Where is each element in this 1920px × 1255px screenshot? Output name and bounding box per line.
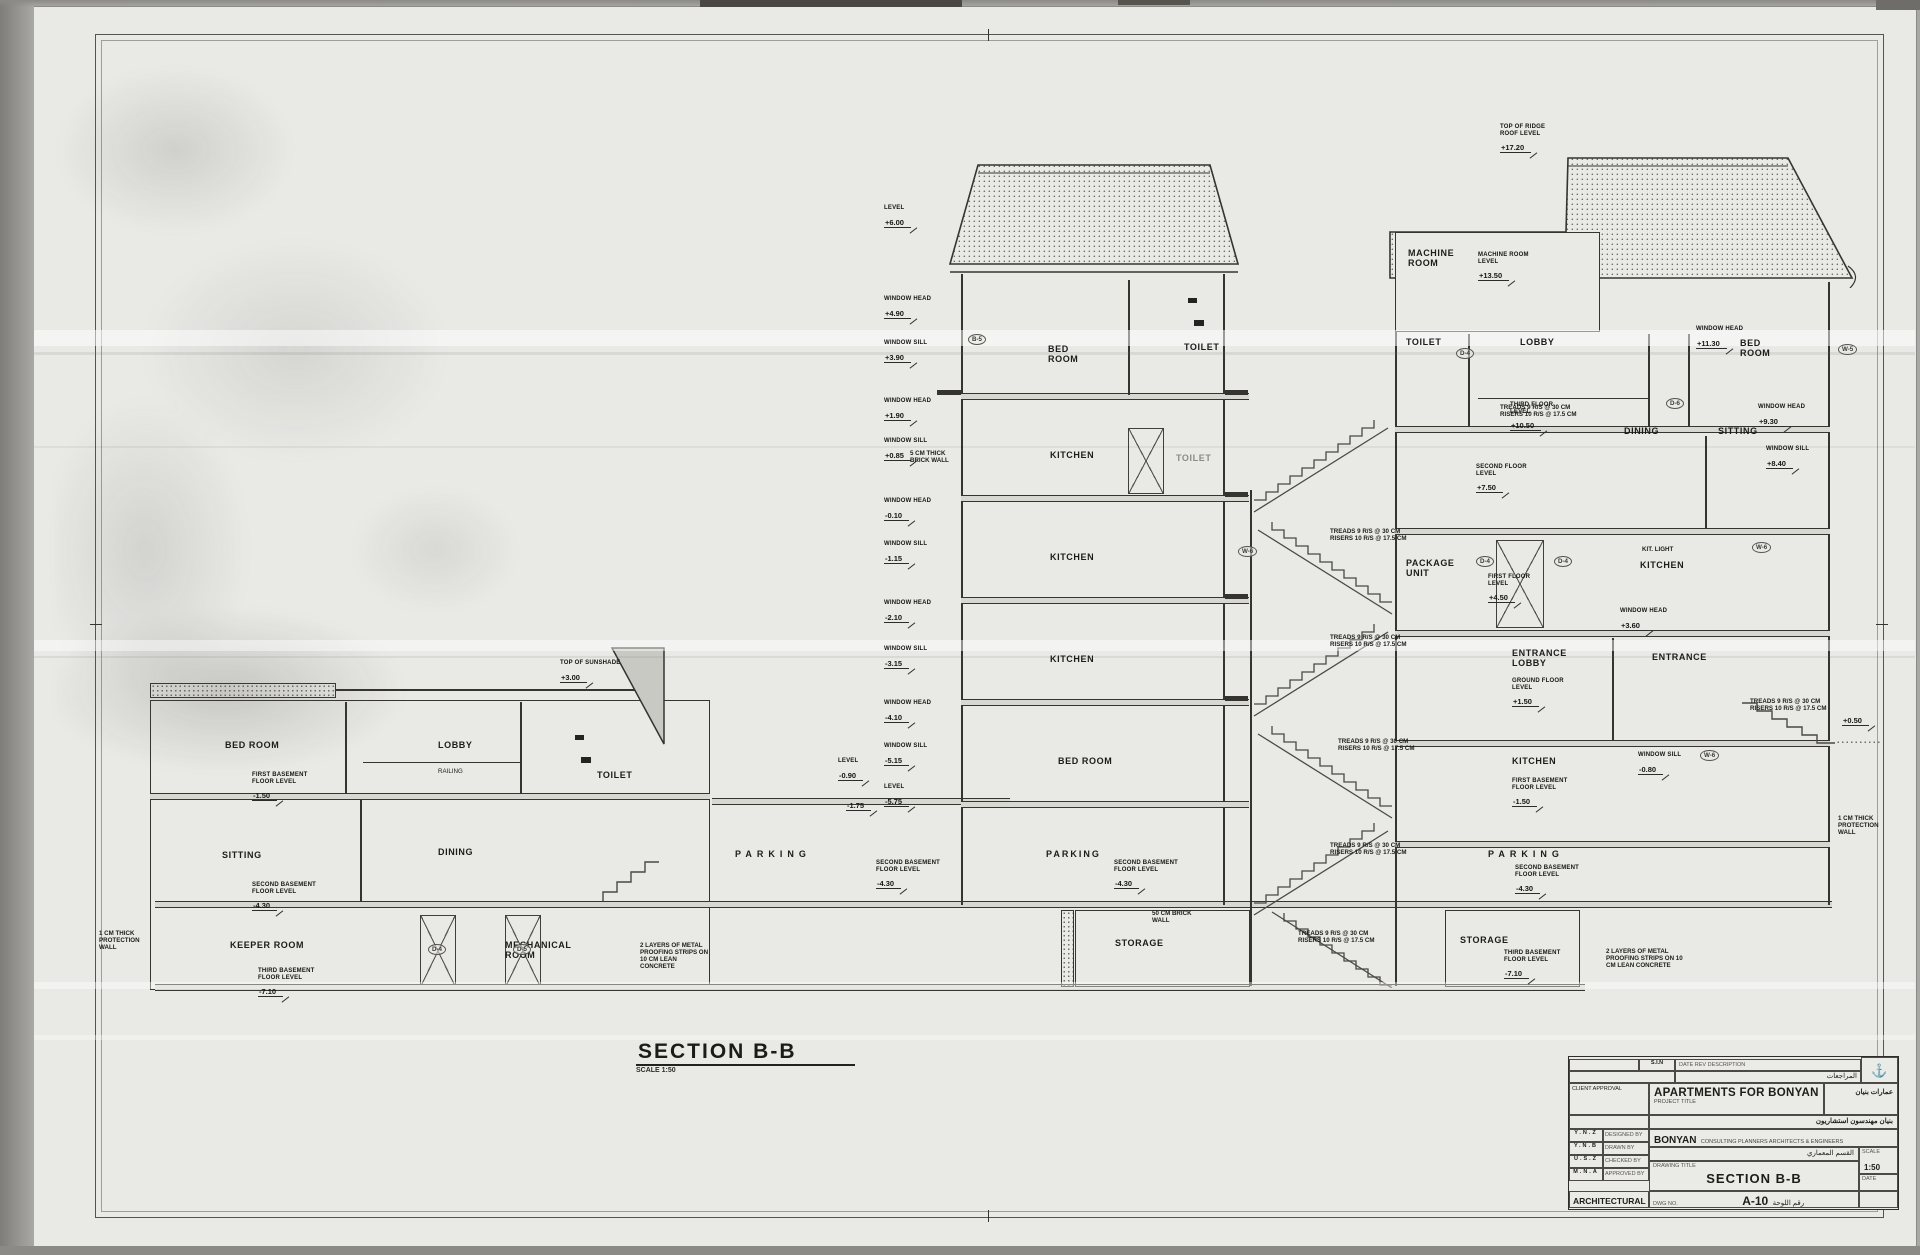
slab (1395, 630, 1830, 637)
level-mark: SECOND BASEMENT FLOOR LEVEL-4.30 (1515, 865, 1579, 896)
room-label-entrance: ENTRANCE (1652, 652, 1707, 662)
section-title-block: SECTION B-B SCALE 1:50 (636, 1040, 855, 1074)
frame-tick (988, 29, 989, 41)
stair-flight (585, 850, 663, 906)
lobby-rail-line (363, 762, 520, 763)
grade-hatch (1836, 740, 1882, 746)
level-mark: WINDOW HEAD+1.90 (884, 398, 931, 422)
level-mark: WINDOW HEAD+11.30 (1696, 326, 1743, 350)
level-mark: WINDOW HEAD+3.60 (1620, 608, 1667, 632)
rev-cell2 (1569, 1071, 1675, 1083)
dwg-no-cell: DWG NO. A-10 رقم اللوحة (1649, 1191, 1859, 1208)
room-label-kitchen: KITCHEN (1640, 560, 1684, 570)
level-mark: THIRD BASEMENT FLOOR LEVEL-7.10 (1504, 950, 1568, 981)
room-label-toilet: TOILET (1406, 337, 1441, 347)
sig-code: U.S.Z (1569, 1155, 1603, 1168)
slab (1395, 841, 1830, 848)
proofing-note: 2 LAYERS OF METAL PROOFING STRIPS ON 10 … (640, 942, 712, 971)
room-label-entrance-lobby: ENTRANCE LOBBY (1512, 648, 1567, 668)
balcony-slab (1225, 594, 1248, 599)
rev-cell (1569, 1059, 1639, 1071)
drawing-title: SECTION B-B (1650, 1171, 1858, 1186)
frame-tick (90, 624, 102, 625)
fixture (1194, 320, 1204, 326)
door-leaf (1128, 428, 1164, 494)
slab (1395, 528, 1830, 535)
room-label-storage: STORAGE (1115, 938, 1164, 948)
room-label-kitchen: KITCHEN (1050, 654, 1094, 664)
dept-arabic: القسم المعماري (1649, 1147, 1859, 1161)
room-label-storage: STORAGE (1460, 935, 1509, 945)
balcony-slab (937, 390, 961, 395)
level-mark: +0.50 (1842, 710, 1869, 728)
project-title: APARTMENTS FOR BONYAN (1650, 1084, 1823, 1099)
room-label-bed-room: BED ROOM (225, 740, 279, 750)
level-mark: SECOND BASEMENT FLOOR LEVEL -4.30 (252, 882, 316, 913)
level-mark: WINDOW SILL-5.15 (884, 743, 927, 767)
project-title-cell: APARTMENTS FOR BONYAN PROJECT TITLE (1649, 1083, 1824, 1115)
room-label-machine-room: MACHINE ROOM (1408, 248, 1454, 268)
kit-light-note: KIT. LIGHT (1642, 546, 1673, 553)
page-edge-shadow (0, 1246, 1920, 1255)
room-label-dining: DINING (1624, 426, 1659, 436)
scale-value: 1:50 (1860, 1163, 1880, 1172)
level-mark: FIRST BASEMENT FLOOR LEVEL-1.50 (1512, 778, 1576, 809)
level-mark: WINDOW HEAD-4.10 (884, 700, 931, 724)
slab (961, 393, 1249, 400)
slab (961, 597, 1249, 604)
level-mark: WINDOW SILL+3.90 (884, 340, 927, 364)
level-mark: WINDOW HEAD+9.30 (1758, 404, 1805, 428)
room-label-bed-room: BED ROOM (1740, 338, 1770, 358)
level-mark: WINDOW HEAD-2.10 (884, 600, 931, 624)
firm-cell: BONYAN CONSULTING PLANNERS ARCHITECTS & … (1649, 1129, 1898, 1147)
window-tag: B-5 (968, 334, 986, 345)
drawing-title-label: DRAWING TITLE (1650, 1162, 1858, 1171)
wall (520, 702, 522, 794)
room-label-bed-room: BED ROOM (1058, 756, 1112, 766)
protection-wall-note: 1 CM THICK PROTECTION WALL (1838, 815, 1886, 836)
stair-note: TREADS 9 R/S @ 30 CMRISERS 10 R/S @ 17.5… (1330, 634, 1408, 648)
slab (961, 699, 1249, 706)
slab (961, 801, 1249, 808)
door-tag: D-4 (1476, 556, 1494, 567)
level-mark: WINDOW SILL-3.15 (884, 646, 927, 670)
wall (1648, 334, 1650, 426)
level-mark: TOP OF SUNSHADE +3.00 (560, 660, 620, 684)
room-label-dining: DINING (438, 847, 473, 857)
slab (150, 793, 710, 800)
room-label-sitting: SITTING (222, 850, 262, 860)
level-mark: WINDOW HEAD-0.10 (884, 498, 931, 522)
door-tag: D-4 (1456, 348, 1474, 359)
level-mark: MACHINE ROOM LEVEL+13.50 (1478, 252, 1542, 283)
rev-code-cell: S.I.N (1639, 1059, 1675, 1071)
room-label-parking-left: PARKING (735, 849, 811, 859)
door-tag: D-4 (1554, 556, 1572, 567)
basement-floor-slab (155, 901, 1832, 908)
level-mark: WINDOW SILL-0.80 (1638, 752, 1681, 776)
sig-code: Y.N.Z (1569, 1129, 1603, 1142)
room-label-toilet: TOILET (597, 770, 632, 780)
scale-label: SCALE (1860, 1148, 1897, 1157)
room-label-kitchen: KITCHEN (1050, 552, 1094, 562)
title-block: S.I.N DATE REV DESCRIPTION ⚓ المراجعات C… (1568, 1056, 1899, 1210)
tower-wall (961, 274, 963, 905)
level-mark: TOP OF RIDGE ROOF LEVEL+17.20 (1500, 124, 1564, 155)
sig-role: APPROVED BY (1603, 1168, 1649, 1181)
balcony-slab (1225, 492, 1248, 497)
wall (1688, 334, 1690, 426)
corner-cell (1859, 1191, 1898, 1208)
room-label-toilet: TOILET (1176, 453, 1211, 463)
section-scale: SCALE 1:50 (636, 1067, 855, 1074)
dwg-no: A-10 (1682, 1194, 1768, 1208)
frame-tick (988, 1210, 989, 1222)
scale-cell: SCALE 1:50 (1859, 1147, 1898, 1174)
sig-code: M.N.A (1569, 1168, 1603, 1181)
level-mark: THIRD FLOOR LEVEL+10.50 (1510, 402, 1574, 433)
discipline: ARCHITECTURAL (1569, 1191, 1649, 1208)
level-mark: WINDOW SILL+8.40 (1766, 446, 1809, 470)
door-tag: D-5 (513, 944, 531, 955)
room-label-lobby: LOBBY (1520, 337, 1555, 347)
tower-wall (1223, 274, 1225, 905)
stair-note: TREADS 9 R/S @ 30 CMRISERS 10 R/S @ 17.5… (1330, 528, 1408, 542)
wall (360, 800, 362, 904)
level-mark: WINDOW HEAD+4.90 (884, 296, 931, 320)
wall (1612, 638, 1614, 740)
room-label-lobby: LOBBY (438, 740, 473, 750)
frame-tick (1876, 624, 1888, 625)
scissor-stairs (1248, 400, 1398, 988)
sig-role: DESIGNED BY (1603, 1129, 1649, 1142)
sig-code: Y.N.B (1569, 1142, 1603, 1155)
level-mark: SECOND FLOOR LEVEL+7.50 (1476, 464, 1540, 495)
level-mark: THIRD BASEMENT FLOOR LEVEL -7.10 (258, 968, 322, 999)
room-label-kitchen: KITCHEN (1050, 450, 1094, 460)
room-label-keeper-room: KEEPER ROOM (230, 940, 304, 950)
dwg-no-label: DWG NO. (1650, 1201, 1678, 1207)
room-label-toilet: TOILET (1184, 342, 1219, 352)
sig-role: CHECKED BY (1603, 1155, 1649, 1168)
wall (1128, 280, 1130, 395)
level-mark: FIRST BASEMENT FLOOR LEVEL -1.50 (252, 772, 316, 803)
level-mark: LEVEL -0.90 (838, 758, 863, 782)
parapet-line (336, 689, 640, 691)
level-mark: SECOND BASEMENT FLOOR LEVEL -4.30 (1114, 860, 1178, 891)
fixture (581, 757, 591, 763)
rev-header-cell: DATE REV DESCRIPTION (1675, 1059, 1861, 1071)
room-label-parking: PARKING (1046, 849, 1101, 859)
level-mark: FIRST FLOOR LEVEL+4.50 (1488, 574, 1552, 605)
blueprint-scan: BED ROOM FIRST BASEMENT FLOOR LEVEL -1.5… (0, 0, 1920, 1255)
room-label-parking: PARKING (1488, 849, 1564, 859)
firm-subtitle: CONSULTING PLANNERS ARCHITECTS & ENGINEE… (1701, 1139, 1843, 1145)
room-label-sitting: SITTING (1718, 426, 1758, 436)
brick-wall-note: 5 CM THICK BRICK WALL (910, 450, 954, 464)
scan-tear (1118, 0, 1190, 5)
rev-arabic-cell: المراجعات (1675, 1071, 1861, 1083)
dwg-no-arabic: رقم اللوحة (1773, 1200, 1804, 1207)
approval-cell: CLIENT APPROVAL (1569, 1083, 1649, 1115)
protection-wall-note: 1 CM THICK PROTECTION WALL (99, 930, 147, 951)
drawing-title-cell: DRAWING TITLE SECTION B-B (1649, 1161, 1859, 1191)
stair-note: TREADS 9 R/S @ 30 CMRISERS 10 R/S @ 17.5… (1298, 930, 1376, 944)
level-mark: LEVEL+6.00 (884, 205, 911, 229)
balcony-slab (1225, 390, 1248, 395)
firm-arabic: بنيان مهندسون استشاريون (1649, 1115, 1898, 1129)
stair-note: TREADS 9 R/S @ 30 CMRISERS 10 R/S @ 17.5… (1330, 842, 1408, 856)
level-mark: -1.75 (846, 795, 871, 813)
wall-hatch (1061, 910, 1074, 987)
level-mark: LEVEL-5.75 (884, 784, 909, 808)
room-label-kitchen: KITCHEN (1512, 756, 1556, 766)
firm-name: BONYAN (1650, 1133, 1696, 1146)
fixture (1188, 298, 1197, 303)
section-title: SECTION B-B (636, 1040, 855, 1066)
stair-note: TREADS 9 R/S @ 30 CMRISERS 10 R/S @ 17.5… (1338, 738, 1416, 752)
level-mark: GROUND FLOOR LEVEL+1.50 (1512, 678, 1576, 709)
door-tag: D-4 (428, 944, 446, 955)
wall (1705, 436, 1707, 528)
room-label-package-unit: PACKAGE UNIT (1406, 558, 1455, 578)
sig-role: DRAWN BY (1603, 1142, 1649, 1155)
balcony-slab (1225, 696, 1248, 701)
date-cell: DATE (1859, 1174, 1898, 1191)
firm-logo: ⚓ (1861, 1057, 1898, 1083)
project-title-arabic: عمارات بنيان (1824, 1083, 1898, 1115)
room-label-bed-room: BED ROOM (1048, 344, 1078, 364)
proofing-note: 2 LAYERS OF METAL PROOFING STRIPS ON 10 … (1606, 948, 1686, 969)
stair-note: TREADS 9 R/S @ 30 CMRISERS 10 R/S @ 17.5… (1750, 698, 1828, 712)
project-title-label: PROJECT TITLE (1650, 1099, 1823, 1106)
wall (345, 702, 347, 794)
middle-roof (948, 160, 1240, 282)
lobby-inner-line (1478, 398, 1650, 399)
page-edge-shadow (0, 0, 34, 1255)
railing-note: RAILING (438, 768, 463, 775)
brick-wall-note: 50 CM BRICK WALL (1152, 910, 1192, 924)
level-mark: WINDOW SILL-1.15 (884, 541, 927, 565)
level-mark: SECOND BASEMENT FLOOR LEVEL -4.30 (876, 860, 940, 891)
scan-tear (700, 0, 962, 7)
scan-tear (1876, 0, 1920, 10)
sig-header (1569, 1115, 1649, 1129)
fixture (575, 735, 584, 740)
door-tag: D-6 (1666, 398, 1684, 409)
tower-wall (1828, 282, 1830, 905)
slab (961, 495, 1249, 502)
terrace-hatch (150, 683, 336, 698)
